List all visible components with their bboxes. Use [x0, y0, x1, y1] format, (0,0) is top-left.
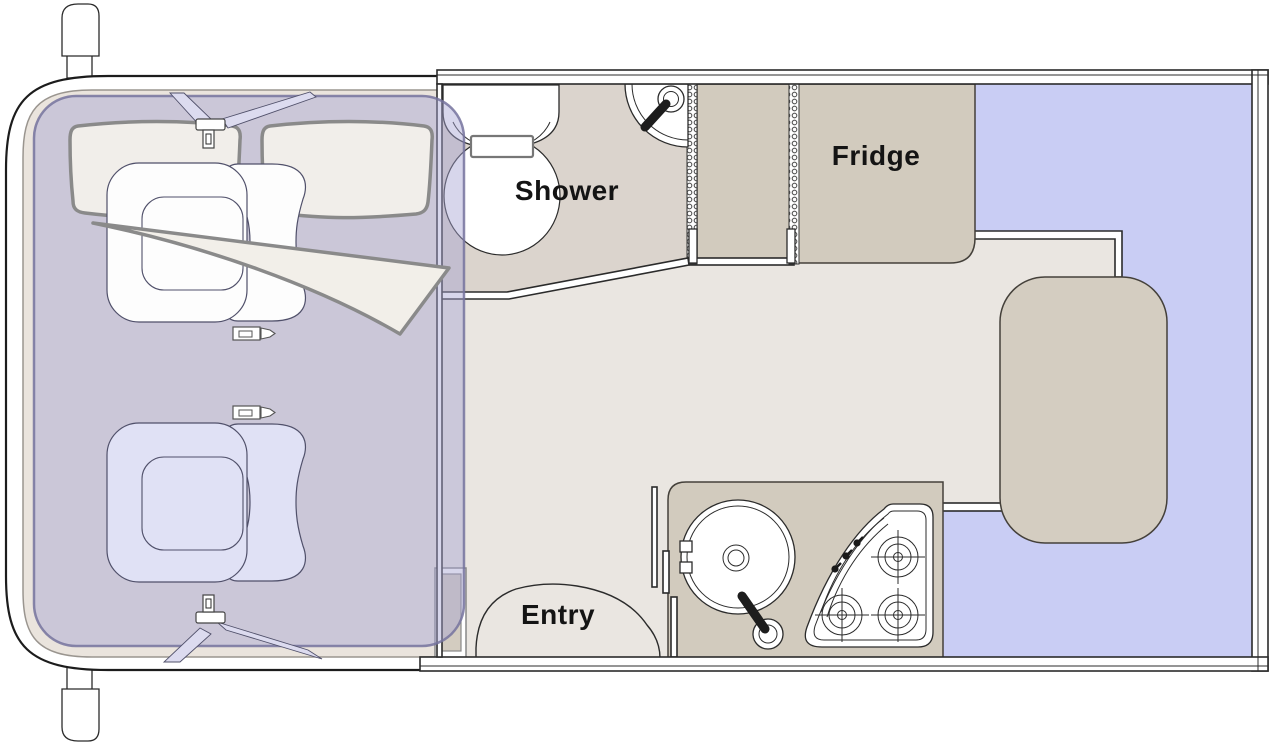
dinette-table [1000, 277, 1167, 543]
floorplan-canvas: Shower Fridge Entry [0, 0, 1271, 746]
sliding-partition-right [787, 84, 799, 264]
kitchen-side-wall-a [652, 487, 657, 587]
wardrobe-bottom-wall [690, 258, 794, 265]
wardrobe-cabinet [697, 84, 792, 260]
fridge-label: Fridge [832, 140, 921, 172]
shower-label: Shower [515, 175, 619, 207]
fridge-cabinet [798, 84, 975, 263]
entry-label: Entry [521, 599, 595, 631]
side-mirror-bottom [62, 667, 99, 741]
dinette-lower-wall [934, 503, 1004, 511]
wall-right [1252, 70, 1268, 671]
side-mirror-top [62, 4, 99, 78]
wall-bottom [420, 657, 1268, 671]
wall-top [437, 70, 1268, 84]
cab-seat-driver [107, 423, 305, 582]
kitchen-side-wall-c [671, 597, 677, 657]
floorplan-drawing [0, 0, 1271, 746]
kitchen-side-wall-b [663, 551, 669, 593]
